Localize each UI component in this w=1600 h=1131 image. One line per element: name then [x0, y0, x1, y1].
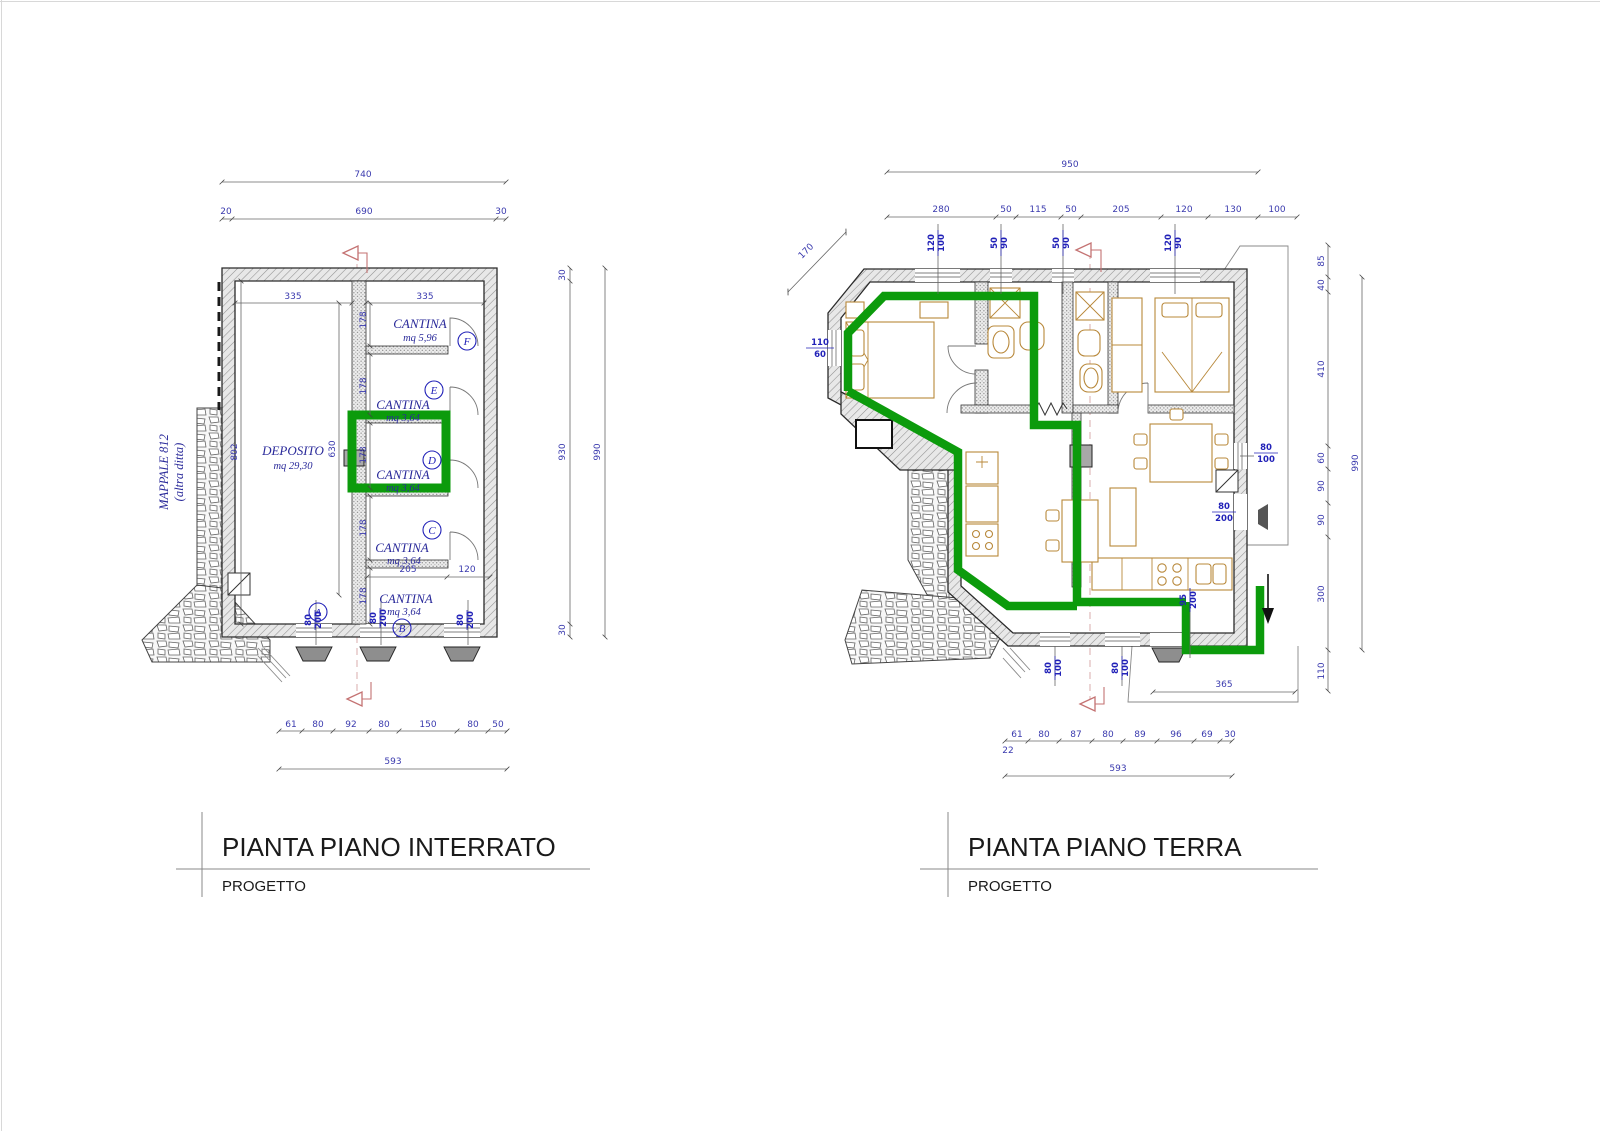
parcel-label: MAPPALE 812 [157, 434, 171, 511]
dim-label: 335 [284, 292, 301, 302]
svg-text:90: 90 [1174, 237, 1184, 249]
svg-text:100: 100 [1054, 659, 1064, 677]
room-area: mq 5,96 [403, 333, 438, 344]
right-floor-plan: 950 280 50 115 50 205 120 130 100 170 85… [788, 160, 1362, 776]
dim-label: 90 [1317, 480, 1327, 492]
svg-text:90: 90 [1000, 237, 1010, 249]
svg-text:200: 200 [314, 611, 324, 629]
dim-label: 335 [416, 292, 433, 302]
window-size-label: 50 90 [990, 230, 1010, 256]
dim-label: 80 [312, 720, 324, 730]
room-name: CANTINA [393, 316, 447, 331]
svg-text:60: 60 [814, 350, 826, 360]
dim-label: 365 [1215, 680, 1232, 690]
svg-text:120: 120 [927, 234, 937, 252]
dim-label: 30 [558, 269, 568, 281]
dim-label: 205 [1112, 205, 1129, 215]
dim-label: 69 [1201, 730, 1213, 740]
svg-text:200: 200 [1215, 514, 1233, 524]
left-floor-plan: 740 20 690 30 30 930 30 990 335 335 178 … [142, 170, 605, 769]
dim-label: 178 [359, 519, 369, 536]
plan-subtitle: PROGETTO [222, 878, 306, 895]
dim-label: 50 [1065, 205, 1077, 215]
dim-label: 120 [1175, 205, 1192, 215]
dim-label: 92 [345, 720, 356, 730]
svg-text:110: 110 [811, 338, 829, 348]
dim-label: 100 [1268, 205, 1285, 215]
window-size-label: 80 100 [1044, 656, 1064, 680]
svg-text:95: 95 [1179, 594, 1189, 606]
door-arcs [450, 318, 478, 560]
section-arrow-bottom [1080, 687, 1104, 711]
svg-text:100: 100 [1121, 659, 1131, 677]
svg-text:80: 80 [1044, 662, 1054, 674]
room-name: CANTINA [376, 467, 430, 482]
dim-label: 130 [1224, 205, 1241, 215]
dim-label: 115 [1029, 205, 1046, 215]
dim-label: 30 [558, 624, 568, 636]
dim-label: 85 [1317, 255, 1327, 266]
room-area: mq 3,64 [386, 413, 421, 424]
entry-step [360, 647, 396, 661]
plan-subtitle: PROGETTO [968, 878, 1052, 895]
dim-label: 60 [1317, 452, 1327, 464]
dim-label: 87 [1070, 730, 1081, 740]
window-size-label: 120 100 [927, 230, 947, 256]
window-size-label: 50 90 [1052, 230, 1072, 256]
dim-label: 950 [1061, 160, 1078, 170]
section-arrow-top [1076, 243, 1101, 272]
room-area: mq 29,30 [273, 461, 313, 472]
dim-label: 61 [1011, 730, 1022, 740]
dim-label: 690 [355, 207, 372, 217]
dim-label: 593 [384, 757, 401, 767]
svg-text:120: 120 [1164, 234, 1174, 252]
drawing-sheet: 740 20 690 30 30 930 30 990 335 335 178 … [0, 0, 1600, 1131]
svg-text:C: C [428, 525, 436, 537]
room-area: mq 3,64 [387, 556, 422, 567]
dim-label: 178 [359, 311, 369, 328]
dim-label: 178 [359, 377, 369, 394]
dim-label: 80 [378, 720, 390, 730]
dim-label: 120 [458, 565, 475, 575]
dim-label: 30 [1224, 730, 1236, 740]
dim-label: 410 [1317, 360, 1327, 377]
svg-text:200: 200 [379, 609, 389, 627]
dim-label: 80 [1102, 730, 1114, 740]
dim-label: 110 [1317, 662, 1327, 679]
exterior-steps [1003, 648, 1030, 678]
room-area: mq 3,64 [387, 607, 422, 618]
dim-label: 990 [1351, 454, 1361, 471]
svg-text:80: 80 [1218, 502, 1230, 512]
room-name: DEPOSITO [261, 443, 324, 458]
svg-text:100: 100 [937, 234, 947, 252]
dim-label: 802 [230, 443, 240, 460]
svg-text:200: 200 [466, 611, 476, 629]
dim-label: 930 [558, 443, 568, 460]
room-name: CANTINA [376, 397, 430, 412]
svg-text:80: 80 [456, 614, 466, 626]
entry-step [444, 647, 480, 661]
parcel-label: (altra ditta) [172, 443, 186, 502]
svg-text:80: 80 [304, 614, 314, 626]
terrace-outline [1222, 246, 1288, 545]
svg-text:80: 80 [1111, 662, 1121, 674]
dim-label: 80 [1038, 730, 1050, 740]
left-title-block: PIANTA PIANO INTERRATO PROGETTO [176, 812, 590, 897]
drawing-canvas: 740 20 690 30 30 930 30 990 335 335 178 … [0, 0, 1600, 1131]
dim-label: 990 [593, 443, 603, 460]
room-name: CANTINA [379, 591, 433, 606]
svg-text:50: 50 [1052, 237, 1062, 249]
window-size-label: 80 100 [1111, 656, 1131, 680]
dim-label: 40 [1317, 279, 1327, 291]
dim-label: 593 [1109, 764, 1126, 774]
dim-label: 280 [932, 205, 949, 215]
dim-label: 170 [797, 242, 816, 261]
svg-text:D: D [427, 455, 436, 467]
svg-text:100: 100 [1257, 455, 1275, 465]
dim-label: 630 [328, 440, 338, 457]
dim-label: 90 [1317, 514, 1327, 526]
entry-step [296, 647, 332, 661]
door-size-label: 80 200 [1212, 502, 1236, 524]
dim-label: 20 [220, 207, 232, 217]
dim-label: 89 [1134, 730, 1146, 740]
dim-label: 150 [419, 720, 436, 730]
exterior-door-step [1258, 504, 1268, 530]
dim-label: 30 [495, 207, 507, 217]
svg-text:50: 50 [990, 237, 1000, 249]
wall-recess [856, 420, 892, 448]
svg-text:80: 80 [1260, 443, 1272, 453]
svg-text:E: E [430, 385, 438, 397]
plan-title: PIANTA PIANO INTERRATO [222, 832, 556, 862]
dim-label: 22 [1002, 746, 1013, 756]
dim-label: 50 [1000, 205, 1012, 215]
window-size-label: 120 90 [1164, 230, 1184, 256]
dim-label: 96 [1170, 730, 1182, 740]
stone-wall [197, 408, 222, 588]
entry-pad-outline [1128, 646, 1298, 702]
plan-title: PIANTA PIANO TERRA [968, 832, 1242, 862]
dim-label: 80 [467, 720, 479, 730]
exterior-steps [258, 648, 290, 682]
dim-label: 740 [354, 170, 371, 180]
entry-step [1152, 648, 1186, 662]
dim-label: 50 [492, 720, 504, 730]
svg-text:F: F [463, 336, 471, 348]
section-arrow-bottom [347, 682, 371, 706]
dim-label: 178 [359, 587, 369, 604]
dim-label: 300 [1317, 585, 1327, 602]
dim-label: 61 [285, 720, 296, 730]
interior-wall [366, 346, 448, 354]
room-name: CANTINA [375, 540, 429, 555]
svg-text:80: 80 [369, 612, 379, 624]
dim-label: 178 [359, 446, 369, 463]
room-area: mq 3,64 [386, 483, 421, 494]
svg-text:B: B [399, 623, 406, 635]
svg-text:90: 90 [1062, 237, 1072, 249]
svg-text:200: 200 [1189, 591, 1199, 609]
right-title-block: PIANTA PIANO TERRA PROGETTO [920, 812, 1318, 897]
